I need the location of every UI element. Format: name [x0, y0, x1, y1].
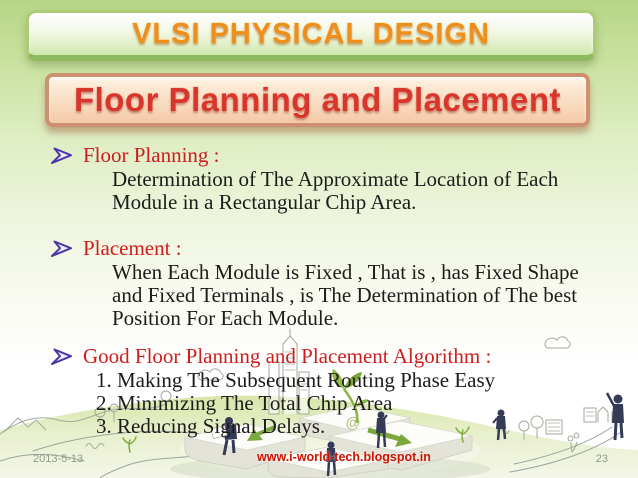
section-algorithm: Good Floor Planning and Placement Algori…: [50, 343, 624, 438]
slide-body: Floor Planning : Determination of The Ap…: [50, 142, 624, 438]
footer-date: 2013-5-13: [33, 453, 83, 465]
slide-title: VLSI PHYSICAL DESIGN: [132, 18, 490, 51]
numbered-item: 3. Reducing Signal Delays.: [96, 415, 624, 438]
heading-text: Placement :: [83, 235, 182, 261]
page-number: 23: [596, 453, 608, 465]
text-line: Module in a Rectangular Chip Area.: [112, 191, 624, 214]
subtitle-banner: Floor Planning and Placement: [45, 73, 590, 127]
section-placement: Placement : When Each Module is Fixed , …: [50, 235, 624, 330]
text-line: and Fixed Terminals , is The Determinati…: [112, 284, 624, 307]
text-line: Position For Each Module.: [112, 307, 624, 330]
text-line: When Each Module is Fixed , That is , ha…: [112, 261, 624, 284]
section-text: When Each Module is Fixed , That is , ha…: [112, 261, 624, 330]
slide-subtitle: Floor Planning and Placement: [74, 81, 561, 119]
section-heading: Placement :: [50, 235, 624, 261]
section-text: Determination of The Approximate Locatio…: [112, 168, 624, 214]
numbered-item: 1. Making The Subsequent Routing Phase E…: [96, 369, 624, 392]
arrow-bullet-icon: [50, 147, 74, 165]
footer-url: www.i-world-tech.blogspot.in: [257, 450, 431, 464]
section-text: 1. Making The Subsequent Routing Phase E…: [96, 369, 624, 438]
section-heading: Floor Planning :: [50, 142, 624, 168]
section-floor-planning: Floor Planning : Determination of The Ap…: [50, 142, 624, 214]
heading-text: Floor Planning :: [83, 142, 220, 168]
heading-text: Good Floor Planning and Placement Algori…: [83, 343, 491, 369]
text-line: Determination of The Approximate Locatio…: [112, 168, 624, 191]
arrow-bullet-icon: [50, 240, 74, 258]
numbered-item: 2. Minimizing The Total Chip Area: [96, 392, 624, 415]
title-banner: VLSI PHYSICAL DESIGN: [26, 10, 596, 61]
arrow-bullet-icon: [50, 348, 74, 366]
section-heading: Good Floor Planning and Placement Algori…: [50, 343, 624, 369]
